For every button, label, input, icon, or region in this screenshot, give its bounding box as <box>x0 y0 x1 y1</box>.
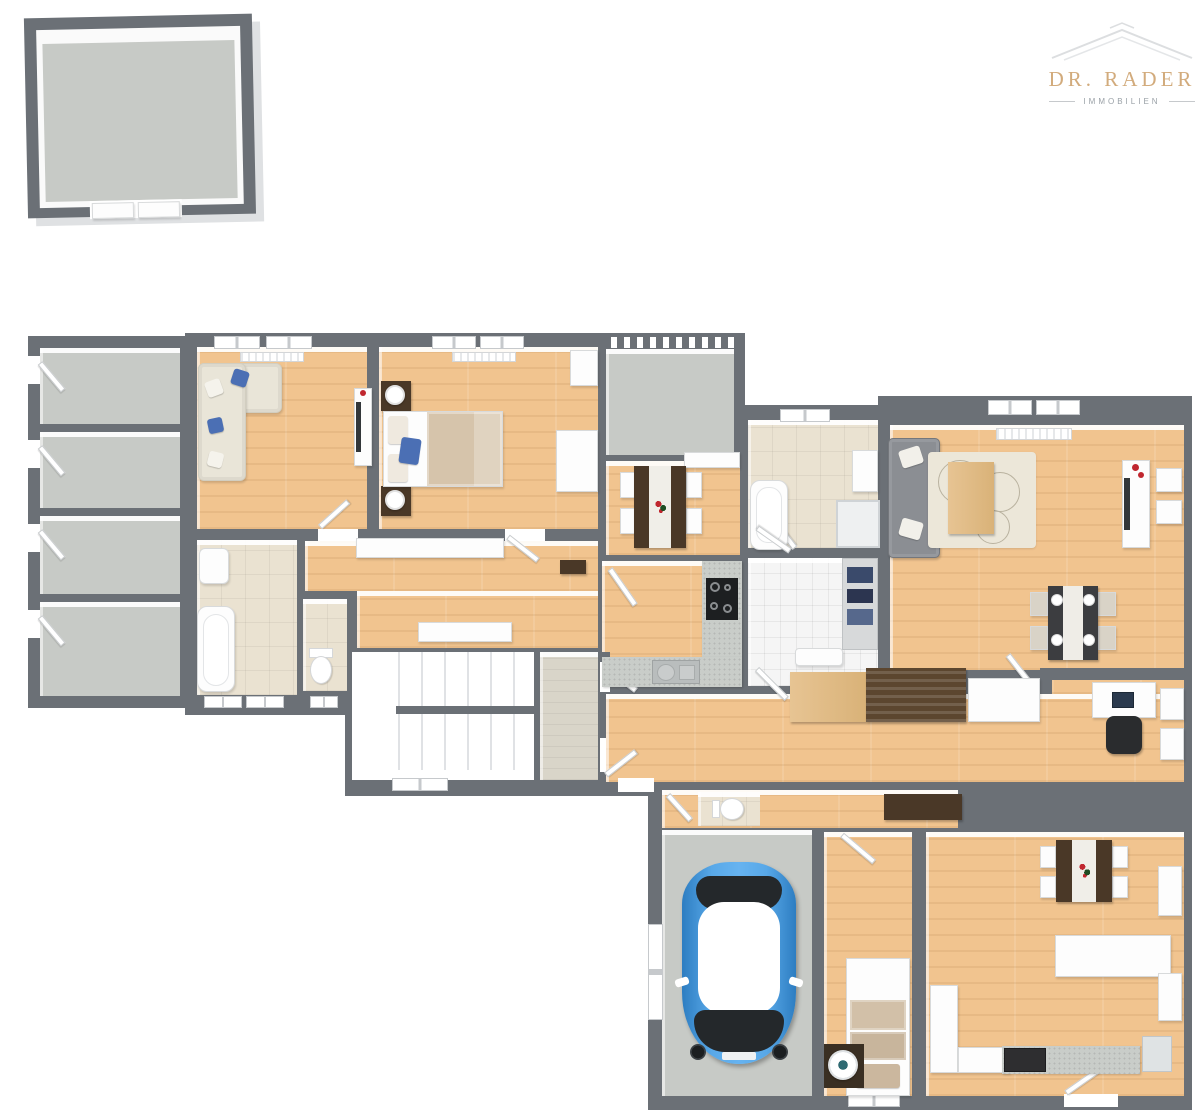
hanging-clothes <box>847 589 873 603</box>
cooktop <box>706 578 738 620</box>
garage-side-door <box>648 924 663 1020</box>
dining-chair <box>1112 876 1128 898</box>
kitchen-island <box>1055 935 1171 977</box>
toilet <box>720 798 744 820</box>
utility-sink <box>795 648 843 666</box>
hall-wardrobe <box>356 538 504 558</box>
lamp <box>385 385 405 405</box>
dining-chair <box>1098 592 1116 616</box>
sideboard <box>684 452 740 468</box>
cellar-door-gap <box>28 356 40 384</box>
sink <box>199 548 229 584</box>
floor-fan <box>828 1050 858 1080</box>
wall-shelf <box>1156 500 1182 524</box>
divider-line <box>1049 101 1075 102</box>
window <box>988 400 1032 415</box>
tv-screen <box>356 402 361 452</box>
accent-pillow <box>398 437 421 466</box>
brand-subtitle: IMMOBILIEN <box>1083 97 1160 106</box>
window <box>246 696 284 708</box>
sink-basin <box>679 665 695 680</box>
burner <box>723 604 732 613</box>
dining-chair <box>1040 846 1056 868</box>
window <box>432 336 476 349</box>
car-headlight <box>690 1044 706 1060</box>
table-runner <box>1063 586 1083 660</box>
sideboard-walnut <box>866 668 966 722</box>
balcony-floor <box>606 349 734 455</box>
car <box>682 862 796 1064</box>
office-chair <box>1106 716 1142 754</box>
dining-chair <box>686 472 702 498</box>
flower-decor <box>1076 858 1092 880</box>
door-gap <box>618 778 654 792</box>
dresser <box>556 430 598 492</box>
oven <box>1004 1048 1046 1072</box>
dining-chair <box>686 508 702 534</box>
sideboard-white <box>968 678 1040 722</box>
balcony-railing <box>604 337 734 348</box>
cellar-door-gap <box>28 524 40 552</box>
shoe-bench <box>560 560 586 574</box>
bathroom-vanity <box>852 450 878 492</box>
wardrobe-dark <box>884 794 962 820</box>
brand-subtitle-row: IMMOBILIEN <box>1046 97 1198 106</box>
dining-chair <box>1030 592 1048 616</box>
plate <box>1051 594 1063 606</box>
cellar-door-gap <box>28 440 40 468</box>
dining-chair <box>1112 846 1128 868</box>
burner <box>724 584 731 591</box>
radiator <box>452 352 516 362</box>
shower <box>836 500 880 548</box>
patio-door-gap <box>1064 1094 1118 1107</box>
bed-blanket <box>427 412 502 486</box>
plate <box>1083 594 1095 606</box>
dining-chair <box>1030 626 1048 650</box>
floor-plan-render: DR. RADER IMMOBILIEN <box>0 0 1200 1112</box>
wall-shelf <box>1160 688 1184 720</box>
plate <box>1051 634 1063 646</box>
detached-room-floor <box>42 40 237 202</box>
hanging-clothes <box>847 567 873 583</box>
wardrobe <box>570 350 598 386</box>
stair-divider-wall <box>396 706 534 714</box>
roof-outline-icon <box>1046 20 1198 62</box>
door-panel <box>92 202 134 219</box>
window <box>1036 400 1080 415</box>
hall-cabinet <box>418 622 512 642</box>
car-headlight <box>772 1044 788 1060</box>
fridge <box>1142 1036 1172 1072</box>
entry-hall-floor <box>540 652 598 780</box>
divider-line <box>1169 101 1195 102</box>
cellar-door-gap <box>28 610 40 638</box>
window <box>392 778 448 791</box>
plate <box>1083 634 1095 646</box>
pillow <box>207 417 225 435</box>
sideboard-lightwood <box>790 672 866 722</box>
kitchen-sink <box>652 660 700 684</box>
laptop <box>1112 692 1134 708</box>
open-wardrobe <box>842 558 878 650</box>
license-plate <box>722 1052 756 1060</box>
burner <box>710 582 720 592</box>
bathtub-basin <box>203 614 229 686</box>
brand-title: DR. RADER <box>1046 67 1198 92</box>
bathtub <box>197 606 235 692</box>
wall-shelf <box>1158 973 1182 1021</box>
car-windshield <box>694 1010 784 1052</box>
detached-room <box>24 14 256 225</box>
door-panel <box>138 201 180 218</box>
wall-shelf <box>1160 728 1184 760</box>
wall-shelf <box>1158 866 1182 916</box>
window <box>480 336 524 349</box>
window <box>266 336 312 349</box>
window <box>214 336 260 349</box>
door-gap <box>318 529 358 541</box>
stair-flight-lower <box>398 714 534 770</box>
window <box>204 696 242 708</box>
cellar-room-floor <box>40 602 180 696</box>
wall-right-apartment-lower <box>1040 668 1192 680</box>
radiator <box>240 352 304 362</box>
decor-vase <box>1132 464 1139 471</box>
window <box>780 409 830 422</box>
sink-basin <box>657 664 675 681</box>
coffee-table <box>948 462 994 534</box>
decor-vase <box>360 390 366 396</box>
window <box>310 696 338 708</box>
toilet <box>310 656 332 684</box>
decor-vase <box>1138 472 1144 478</box>
flower-decor <box>652 496 668 516</box>
brand-logo: DR. RADER IMMOBILIEN <box>1046 20 1198 106</box>
radiator <box>996 428 1072 440</box>
stair-flight-upper <box>398 652 534 706</box>
dining-chair <box>1040 876 1056 898</box>
toilet-tank <box>712 800 720 818</box>
dining-chair <box>1098 626 1116 650</box>
bed-blanket <box>850 1000 906 1030</box>
counter-l-vertical <box>930 985 958 1073</box>
tv-screen <box>1124 478 1130 530</box>
lamp <box>385 490 405 510</box>
wall-shelf <box>1156 468 1182 492</box>
burner <box>710 602 718 610</box>
car-roof <box>698 902 780 1014</box>
hanging-clothes <box>847 609 873 625</box>
